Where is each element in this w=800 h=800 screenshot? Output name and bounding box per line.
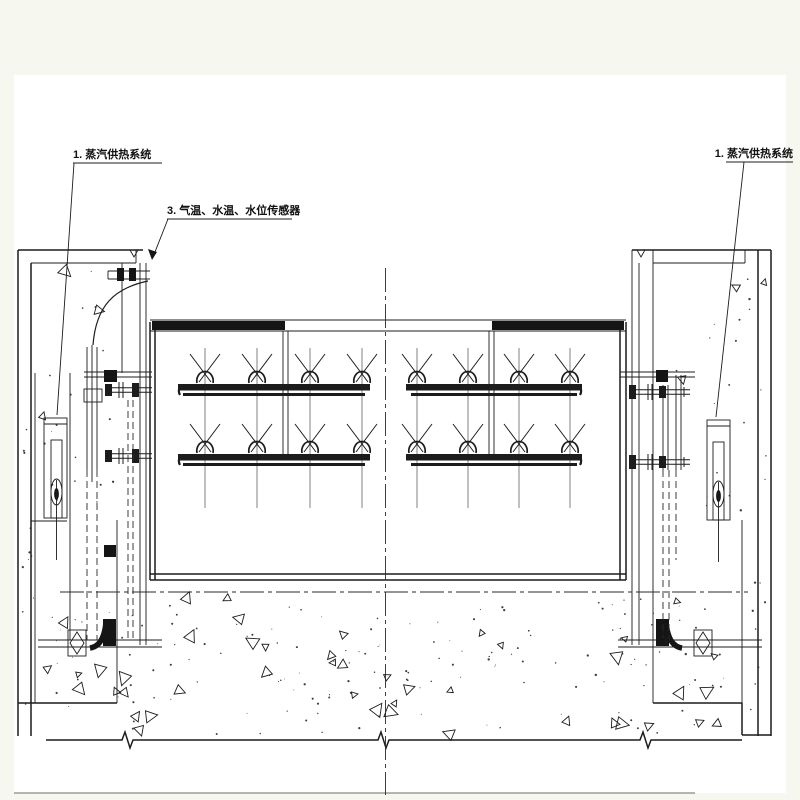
speckle-dot xyxy=(407,672,409,674)
speckle-dot xyxy=(555,662,557,664)
speckle-dot xyxy=(22,611,24,613)
speckle-dot xyxy=(714,403,715,404)
speckle-dot xyxy=(494,666,495,667)
speckle-dot xyxy=(130,684,132,686)
speckle-dot xyxy=(75,619,76,620)
speckle-dot xyxy=(379,645,380,646)
speckle-dot xyxy=(349,662,350,663)
speckle-dot xyxy=(23,450,25,452)
speckle-dot xyxy=(452,664,454,666)
label-steam-right: 1. 蒸汽供热系统 xyxy=(715,146,793,160)
speckle-dot xyxy=(637,727,639,729)
speckle-dot xyxy=(271,629,272,630)
speckle-dot xyxy=(431,681,432,682)
speckle-dot xyxy=(57,663,58,664)
speckle-dot xyxy=(277,642,279,644)
speckle-dot xyxy=(312,698,314,700)
speckle-dot xyxy=(620,638,621,639)
speckle-dot xyxy=(709,337,710,338)
speckle-dot xyxy=(694,679,696,681)
speckle-dot xyxy=(681,710,683,712)
speckle-dot xyxy=(52,617,53,618)
speckle-dot xyxy=(438,658,440,660)
speckle-dot xyxy=(759,582,760,583)
speckle-dot xyxy=(561,714,562,715)
speckle-dot xyxy=(728,384,730,386)
speckle-dot xyxy=(473,618,475,620)
speckle-dot xyxy=(247,636,248,637)
speckle-dot xyxy=(764,601,766,603)
speckle-dot xyxy=(630,664,631,665)
speckle-dot xyxy=(329,694,330,695)
speckle-dot xyxy=(460,677,461,678)
speckle-dot xyxy=(723,678,724,679)
speckle-dot xyxy=(522,660,524,662)
speckle-dot xyxy=(651,624,653,626)
speckle-dot xyxy=(102,350,104,352)
speckle-dot xyxy=(630,719,632,721)
speckle-dot xyxy=(488,658,490,660)
speckle-dot xyxy=(618,712,619,713)
speckle-dot xyxy=(754,581,756,583)
speckle-dot xyxy=(23,452,25,454)
speckle-dot xyxy=(645,664,646,665)
speckle-dot xyxy=(760,389,761,390)
speckle-dot xyxy=(33,598,34,599)
speckle-dot xyxy=(74,480,76,482)
speckle-dot xyxy=(699,647,700,648)
speckle-dot xyxy=(765,455,766,456)
speckle-dot xyxy=(197,681,198,682)
speckle-dot xyxy=(640,598,642,600)
speckle-dot xyxy=(480,609,481,610)
speckle-dot xyxy=(188,659,189,660)
speckle-dot xyxy=(750,709,752,711)
speckle-dot xyxy=(109,418,111,420)
speckle-dot xyxy=(170,699,171,700)
speckle-dot xyxy=(421,714,422,715)
speckle-dot xyxy=(28,559,29,560)
speckle-dot xyxy=(259,733,261,735)
speckle-dot xyxy=(495,665,496,666)
speckle-dot xyxy=(764,479,765,480)
speckle-dot xyxy=(278,681,279,682)
speckle-dot xyxy=(602,608,604,610)
label-sensors: 3. 气温、水温、水位传感器 xyxy=(167,203,301,217)
speckle-dot xyxy=(304,683,306,685)
speckle-dot xyxy=(517,647,519,649)
speckle-dot xyxy=(729,495,731,497)
speckle-dot xyxy=(305,719,307,721)
speckle-dot xyxy=(236,624,237,625)
speckle-dot xyxy=(56,640,57,641)
speckle-dot xyxy=(491,652,493,654)
speckle-dot xyxy=(656,732,658,734)
speckle-dot xyxy=(284,679,285,680)
speckle-dot xyxy=(43,442,45,444)
speckle-dot xyxy=(56,424,58,426)
speckle-dot xyxy=(204,643,206,645)
speckle-dot xyxy=(748,298,750,300)
speckle-dot xyxy=(735,340,737,342)
speckle-dot xyxy=(694,724,695,725)
speckle-dot xyxy=(752,610,754,612)
speckle-dot xyxy=(176,614,178,616)
speckle-dot xyxy=(405,670,407,672)
drawing-canvas: 1. 蒸汽供热系统 3. 气温、水温、水位传感器 1. 蒸汽供热系统 xyxy=(0,0,800,800)
speckle-dot xyxy=(68,706,69,707)
speckle-dot xyxy=(676,370,678,372)
speckle-dot xyxy=(755,628,757,630)
speckle-dot xyxy=(716,472,718,474)
speckle-dot xyxy=(706,505,707,506)
speckle-dot xyxy=(695,627,697,629)
speckle-dot xyxy=(345,650,346,651)
speckle-dot xyxy=(679,620,680,621)
speckle-dot xyxy=(720,686,722,688)
speckle-dot xyxy=(22,566,24,568)
speckle-dot xyxy=(612,604,613,605)
speckle-dot xyxy=(280,680,282,682)
speckle-dot xyxy=(378,646,379,647)
speckle-dot xyxy=(216,733,218,735)
speckle-dot xyxy=(109,612,110,613)
speckle-dot xyxy=(112,481,114,483)
speckle-dot xyxy=(659,651,660,652)
speckle-dot xyxy=(31,555,33,557)
speckle-dot xyxy=(317,703,319,705)
speckle-dot xyxy=(170,664,172,666)
speckle-dot xyxy=(91,271,92,272)
speckle-dot xyxy=(377,618,379,620)
speckle-dot xyxy=(57,500,58,501)
speckle-dot xyxy=(523,682,525,684)
speckle-dot xyxy=(624,613,626,615)
speckle-dot xyxy=(379,687,381,689)
speckle-dot xyxy=(141,625,143,627)
speckle-dot xyxy=(714,324,715,325)
speckle-dot xyxy=(407,679,409,681)
speckle-dot xyxy=(72,657,73,658)
speckle-dot xyxy=(530,635,531,636)
speckle-dot xyxy=(433,641,435,643)
speckle-dot xyxy=(118,696,119,697)
speckle-dot xyxy=(528,630,530,632)
speckle-dot xyxy=(747,278,749,280)
speckle-dot xyxy=(100,484,102,486)
speckle-dot xyxy=(26,429,27,430)
speckle-dot xyxy=(51,484,53,486)
speckle-dot xyxy=(358,727,360,729)
speckle-dot xyxy=(196,628,198,630)
speckle-dot xyxy=(598,602,600,604)
speckle-dot xyxy=(174,644,175,645)
speckle-dot xyxy=(60,630,61,631)
speckle-dot xyxy=(707,496,708,497)
speckle-dot xyxy=(82,307,84,309)
speckle-dot xyxy=(437,622,438,623)
speckle-dot xyxy=(501,606,503,608)
speckle-dot xyxy=(754,683,756,685)
speckle-dot xyxy=(30,527,32,529)
speckle-dot xyxy=(374,671,375,672)
speckle-dot xyxy=(153,697,155,699)
speckle-dot xyxy=(247,713,248,714)
speckle-dot xyxy=(51,431,52,432)
speckle-dot xyxy=(157,643,158,644)
speckle-dot xyxy=(121,637,123,639)
speckle-dot xyxy=(296,646,298,648)
speckle-dot xyxy=(299,673,300,674)
speckle-dot xyxy=(719,653,721,655)
speckle-dot xyxy=(133,720,135,722)
speckle-dot xyxy=(704,608,706,610)
speckle-dot xyxy=(740,509,742,511)
speckle-dot xyxy=(603,681,604,682)
speckle-dot xyxy=(321,616,322,617)
speckle-dot xyxy=(81,621,82,622)
speckle-dot xyxy=(328,697,330,699)
speckle-dot xyxy=(169,605,171,607)
speckle-dot xyxy=(499,727,501,729)
steam-header-left xyxy=(152,321,285,330)
speckle-dot xyxy=(489,656,490,657)
speckle-dot xyxy=(358,651,359,652)
speckle-dot xyxy=(743,422,745,424)
speckle-dot xyxy=(300,609,302,611)
speckle-dot xyxy=(220,653,221,654)
speckle-dot xyxy=(287,710,288,711)
speckle-dot xyxy=(749,309,750,310)
speckle-dot xyxy=(623,599,624,600)
speckle-dot xyxy=(486,725,487,726)
speckle-dot xyxy=(612,629,613,630)
speckle-dot xyxy=(251,634,253,636)
speckle-dot xyxy=(77,679,79,681)
speckle-dot xyxy=(511,654,512,655)
speckle-dot xyxy=(132,701,134,703)
speckle-dot xyxy=(712,685,714,687)
speckle-dot xyxy=(738,319,740,321)
speckle-dot xyxy=(152,669,154,671)
speckle-dot xyxy=(653,613,654,614)
speckle-dot xyxy=(317,713,318,714)
speckle-dot xyxy=(364,653,366,655)
steam-header-right xyxy=(492,321,624,330)
speckle-dot xyxy=(409,623,410,624)
speckle-dot xyxy=(75,457,77,459)
speckle-dot xyxy=(56,692,58,694)
speckle-dot xyxy=(503,609,505,611)
label-steam-left: 1. 蒸汽供热系统 xyxy=(73,147,151,161)
speckle-dot xyxy=(70,394,72,396)
speckle-dot xyxy=(596,675,597,676)
speckle-dot xyxy=(28,551,30,553)
speckle-dot xyxy=(634,659,635,660)
speckle-dot xyxy=(620,628,621,629)
speckle-dot xyxy=(660,390,662,392)
speckle-dot xyxy=(685,653,687,655)
speckle-dot xyxy=(321,732,322,733)
speckle-dot xyxy=(679,606,680,607)
speckle-dot xyxy=(575,686,577,688)
speckle-dot xyxy=(347,680,349,682)
speckle-dot xyxy=(643,685,644,686)
speckle-dot xyxy=(370,628,372,630)
speckle-dot xyxy=(293,689,294,690)
speckle-dot xyxy=(129,654,131,656)
speckle-dot xyxy=(449,640,450,641)
speckle-dot xyxy=(25,703,26,704)
speckle-dot xyxy=(49,375,51,377)
speckle-dot xyxy=(689,684,690,685)
speckle-dot xyxy=(587,654,589,656)
speckle-dot xyxy=(333,661,334,662)
speckle-dot xyxy=(289,607,290,608)
speckle-dot xyxy=(758,667,760,669)
speckle-dot xyxy=(171,623,173,625)
speckle-dot xyxy=(420,687,421,688)
speckle-dot xyxy=(96,501,97,502)
speckle-dot xyxy=(461,651,462,652)
